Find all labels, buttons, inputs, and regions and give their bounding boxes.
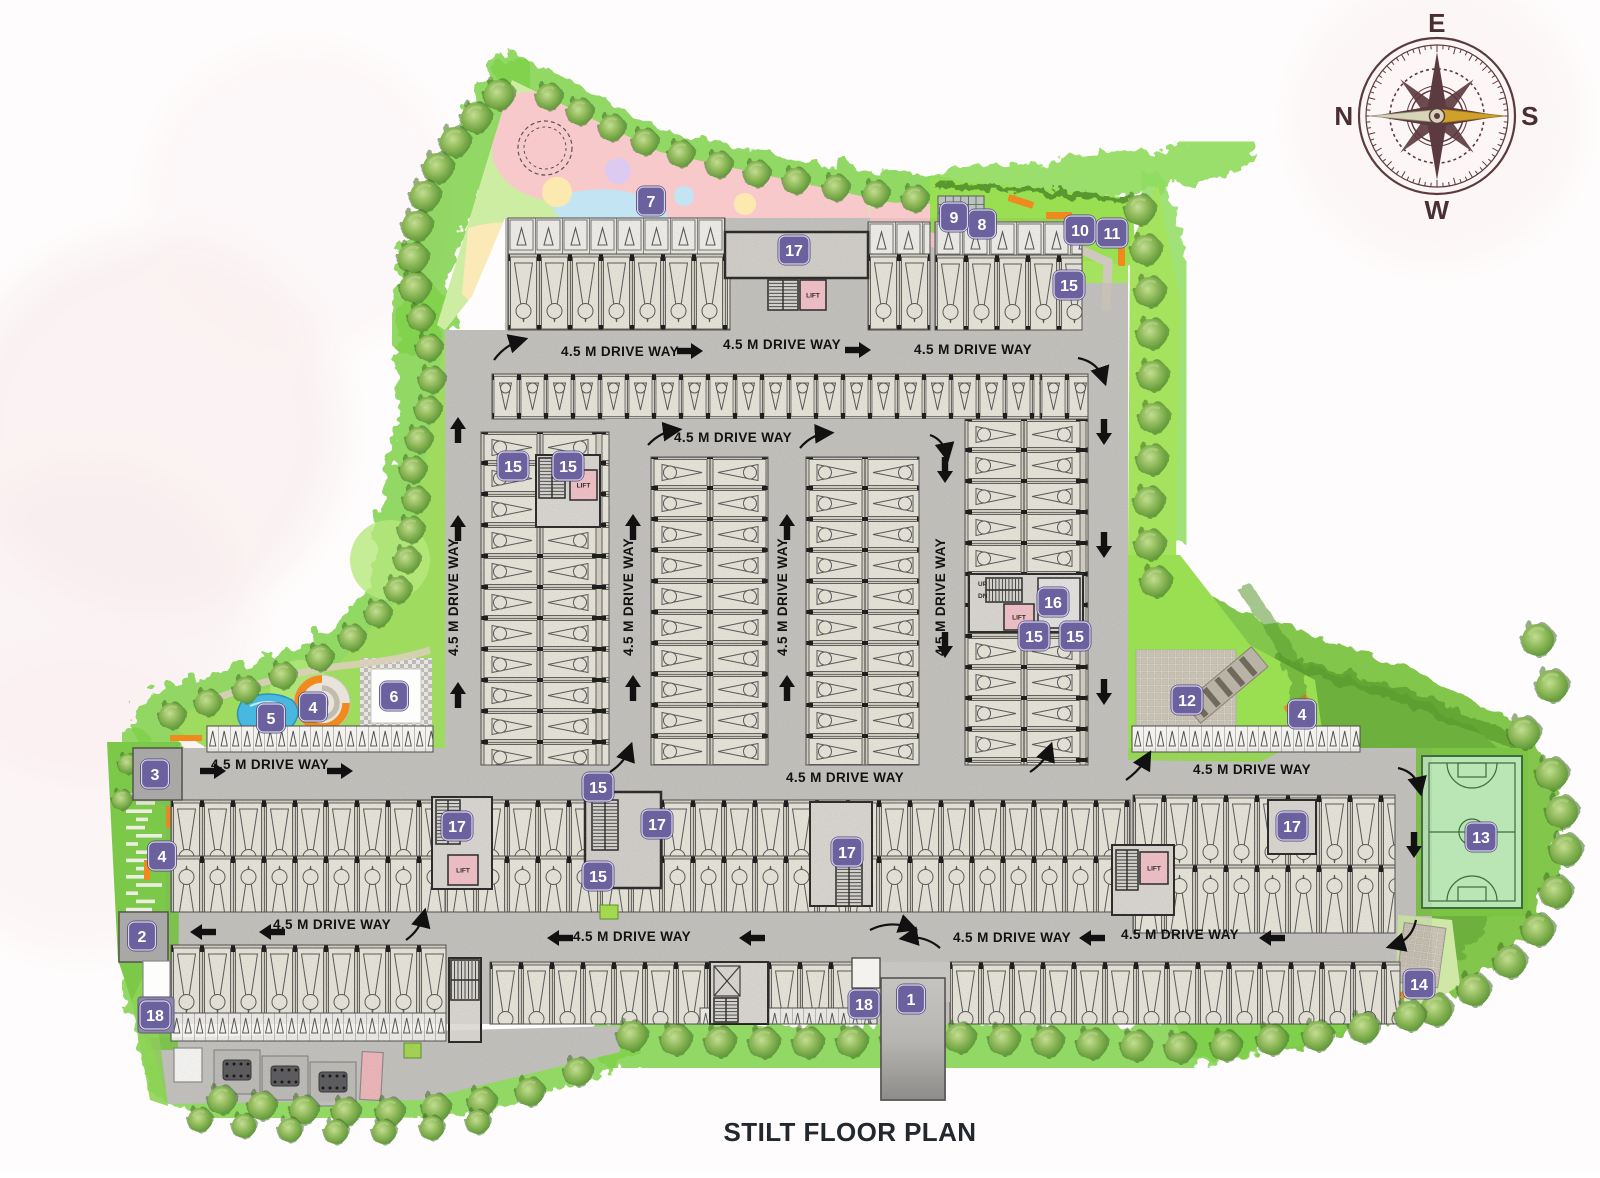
svg-text:4: 4 [309,700,318,717]
svg-text:4.5 M DRIVE WAY: 4.5 M DRIVE WAY [621,538,636,656]
svg-text:17: 17 [1283,819,1301,836]
svg-text:18: 18 [146,1008,164,1025]
svg-text:17: 17 [785,243,803,260]
svg-text:15: 15 [559,459,577,476]
svg-text:4.5 M DRIVE WAY: 4.5 M DRIVE WAY [786,770,904,785]
svg-text:15: 15 [1066,629,1084,646]
svg-text:8: 8 [978,217,987,234]
svg-text:13: 13 [1472,830,1490,847]
svg-text:STILT FLOOR PLAN: STILT FLOOR PLAN [724,1117,977,1147]
svg-text:18: 18 [855,997,873,1014]
svg-text:5: 5 [267,711,276,728]
svg-text:15: 15 [504,459,522,476]
svg-text:1: 1 [907,992,916,1009]
svg-text:14: 14 [1410,977,1428,994]
svg-text:4.5 M DRIVE WAY: 4.5 M DRIVE WAY [953,930,1071,945]
svg-text:4.5 M DRIVE WAY: 4.5 M DRIVE WAY [211,757,329,772]
svg-text:4.5 M DRIVE WAY: 4.5 M DRIVE WAY [273,917,391,932]
svg-text:4.5 M DRIVE WAY: 4.5 M DRIVE WAY [914,342,1032,357]
svg-text:4.5 M DRIVE WAY: 4.5 M DRIVE WAY [775,538,790,656]
svg-text:4.5 M DRIVE WAY: 4.5 M DRIVE WAY [1121,927,1239,942]
svg-text:7: 7 [647,194,656,211]
svg-text:10: 10 [1071,223,1089,240]
svg-text:11: 11 [1104,226,1121,243]
svg-text:15: 15 [589,780,607,797]
svg-text:4.5 M DRIVE WAY: 4.5 M DRIVE WAY [674,430,792,445]
svg-text:3: 3 [151,767,160,784]
svg-text:2: 2 [138,929,147,946]
svg-text:15: 15 [589,869,607,886]
svg-text:N: N [1334,101,1353,131]
svg-text:15: 15 [1060,278,1078,295]
svg-text:4: 4 [1298,707,1307,724]
svg-text:4.5 M DRIVE WAY: 4.5 M DRIVE WAY [561,344,679,359]
svg-text:4.5 M DRIVE WAY: 4.5 M DRIVE WAY [1193,762,1311,777]
svg-text:17: 17 [838,845,856,862]
svg-text:W: W [1424,195,1449,225]
svg-text:4.5 M DRIVE WAY: 4.5 M DRIVE WAY [573,929,691,944]
svg-text:17: 17 [448,819,466,836]
svg-text:17: 17 [648,817,666,834]
svg-text:6: 6 [390,689,399,706]
svg-text:E: E [1428,8,1446,38]
svg-text:4.5 M DRIVE WAY: 4.5 M DRIVE WAY [446,538,461,656]
svg-text:4: 4 [158,849,167,866]
svg-text:12: 12 [1178,693,1196,710]
svg-text:9: 9 [950,210,959,227]
svg-text:S: S [1521,101,1539,131]
svg-text:15: 15 [1025,629,1043,646]
svg-text:4.5 M DRIVE WAY: 4.5 M DRIVE WAY [723,337,841,352]
svg-text:16: 16 [1044,595,1062,612]
